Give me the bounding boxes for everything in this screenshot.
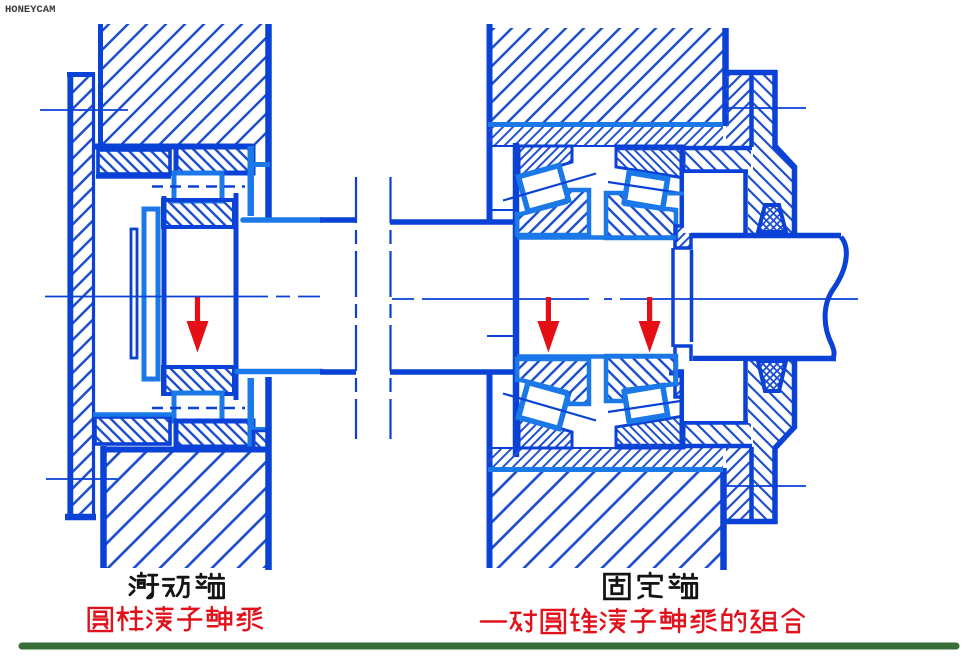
svg-text:HONEYCAM: HONEYCAM <box>5 4 55 16</box>
